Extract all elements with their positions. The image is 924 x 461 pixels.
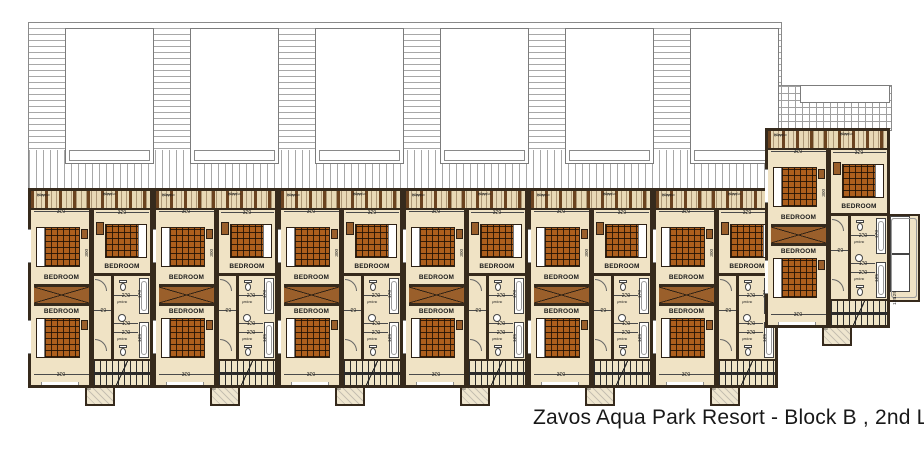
pergola-strip: ξύλινη πέργολα ξύλινη πέργολα <box>406 191 525 210</box>
bed <box>773 167 817 207</box>
bath-label: μπάνιο <box>367 301 377 304</box>
pillow-icon <box>162 228 170 266</box>
stair-bay: 90 <box>85 386 115 406</box>
roof-opening <box>65 28 154 164</box>
bedroom-label: BEDROOM <box>659 308 714 315</box>
dimension-label: 90 <box>831 250 849 251</box>
bedroom-label: BEDROOM <box>345 263 399 270</box>
dimension-label: 220 <box>114 295 138 296</box>
bench <box>346 222 354 235</box>
dimension-label: 220 <box>851 272 875 273</box>
dimension-label: 300 <box>534 211 589 212</box>
bathtub <box>890 254 910 292</box>
bath-label: μπάνιο <box>492 301 502 304</box>
interior-wall <box>344 273 400 276</box>
bath-label: μπάνιο <box>242 338 252 341</box>
toilet-bowl <box>245 283 251 291</box>
dimension-label: 220 <box>614 332 638 333</box>
stair-winder-line <box>219 361 275 385</box>
bed-blanket <box>45 319 79 357</box>
window <box>403 320 406 354</box>
pillow-icon <box>662 319 670 357</box>
dimension-label: 220 <box>489 332 513 333</box>
window <box>41 382 79 385</box>
stair-winder-line <box>594 361 650 385</box>
bath-label: μπάνιο <box>117 338 127 341</box>
dimension-label: 125 <box>893 297 898 305</box>
window <box>765 260 768 294</box>
dimension-label: 170 <box>638 290 643 298</box>
toilet-bowl <box>370 348 376 356</box>
end-unit-bath-strip: 125 125 <box>888 214 920 302</box>
dimension-label: 120 <box>364 323 388 324</box>
dimension-label: 90 <box>824 328 838 331</box>
stairs <box>831 299 887 325</box>
dimension-label: 220 <box>739 295 763 296</box>
nightstand <box>581 229 588 239</box>
window <box>765 169 768 203</box>
dimension-label: 90 <box>337 388 351 391</box>
interior-wall <box>831 213 887 216</box>
nightstand <box>206 320 213 330</box>
dimension-label: 300 <box>771 314 826 315</box>
bedroom-label: BEDROOM <box>771 248 826 255</box>
bed-blanket <box>170 228 204 266</box>
dimension-label: 90 <box>462 388 476 391</box>
bed <box>161 227 205 267</box>
bench <box>833 162 841 175</box>
unit: ξύλινη πέργολα ξύλινη πέργολα 300 300 BE… <box>765 128 890 328</box>
pergola-strip: ξύλινη πέργολα ξύλινη πέργολα <box>656 191 775 210</box>
dimension-label: 90 <box>594 310 612 311</box>
dimension-label: 220 <box>489 295 513 296</box>
unit: ξύλινη πέργολα ξύλινη πέργολα 300 300 BE… <box>653 188 778 388</box>
bench <box>596 222 604 235</box>
door-arc <box>595 339 607 351</box>
bed <box>105 224 147 258</box>
interior-wall <box>594 273 650 276</box>
dimension-label: 125 <box>138 334 143 342</box>
toilet-bowl <box>370 283 376 291</box>
stair-winder-line <box>94 361 150 385</box>
roof-opening-sill <box>569 150 650 161</box>
bedroom-label: BEDROOM <box>220 263 274 270</box>
window <box>291 382 329 385</box>
bedroom-label: BEDROOM <box>832 203 886 210</box>
roof-opening-sill <box>69 150 150 161</box>
stairs <box>469 359 525 385</box>
unit: ξύλινη πέργολα ξύλινη πέργολα 300 300 BE… <box>403 188 528 388</box>
interior-wall <box>611 276 614 359</box>
toilet-icon <box>244 280 252 291</box>
dimension-label: 220 <box>739 332 763 333</box>
pillow-icon <box>875 165 883 197</box>
bedroom-label: BEDROOM <box>470 263 524 270</box>
bedroom-label: BEDROOM <box>659 274 714 281</box>
bed-blanket <box>231 225 263 257</box>
window <box>666 382 704 385</box>
nightstand <box>818 169 825 179</box>
pergola-strip: ξύλινη πέργολα ξύλινη πέργολα <box>281 191 400 210</box>
stairs <box>219 359 275 385</box>
unit: ξύλινη πέργολα ξύλινη πέργολα 300 300 BE… <box>278 188 403 388</box>
window <box>653 229 656 263</box>
window <box>653 320 656 354</box>
dimension-label: 320 <box>471 212 524 213</box>
bed <box>355 224 397 258</box>
interior-wall <box>236 276 239 359</box>
pillow-icon <box>287 228 295 266</box>
dimension-label: 120 <box>614 323 638 324</box>
stair-bay: 90 <box>585 386 615 406</box>
dimension-label: 170 <box>388 290 393 298</box>
bed-blanket <box>843 165 875 197</box>
roof-opening <box>440 28 529 164</box>
toilet-bowl <box>620 348 626 356</box>
bed <box>411 227 455 267</box>
end-veranda-roof <box>800 85 890 103</box>
bath-label: μπάνιο <box>854 278 864 281</box>
door-arc <box>720 279 732 291</box>
dimension-label: 170 <box>138 290 143 298</box>
dimension-label: 120 <box>739 323 763 324</box>
bed <box>661 227 705 267</box>
bed-blanket <box>295 228 329 266</box>
pillow-icon <box>37 319 45 357</box>
dimension-label: 300 <box>159 374 214 375</box>
window <box>403 229 406 263</box>
bed-blanket <box>420 319 454 357</box>
window <box>528 320 531 354</box>
pergola-strip: ξύλινη πέργολα ξύλινη πέργολα <box>31 191 150 210</box>
stairs <box>94 359 150 385</box>
toilet-bowl <box>495 348 501 356</box>
wardrobe <box>534 284 589 306</box>
interior-wall <box>736 276 739 359</box>
interior-wall <box>848 216 851 299</box>
pergola-strip: ξύλινη πέργολα ξύλινη πέργολα <box>156 191 275 210</box>
toilet-bowl <box>620 283 626 291</box>
pillow-icon <box>537 319 545 357</box>
dimension-label: 120 <box>851 263 875 264</box>
stair-winder-line <box>469 361 525 385</box>
toilet-icon <box>744 345 752 356</box>
dimension-label: 300 <box>284 374 339 375</box>
toilet-icon <box>856 220 864 231</box>
toilet-icon <box>619 345 627 356</box>
dimension-label: 90 <box>219 310 237 311</box>
window <box>28 320 31 354</box>
toilet-icon <box>619 280 627 291</box>
pillow-icon <box>638 225 646 257</box>
toilet-icon <box>744 280 752 291</box>
door-arc <box>470 279 482 291</box>
dimension-label: 90 <box>719 310 737 311</box>
bath-label: μπάνιο <box>492 338 502 341</box>
toilet-bowl <box>120 283 126 291</box>
dimension-label: 320 <box>221 212 274 213</box>
dimension-label: 300 <box>284 211 339 212</box>
dimension-label: 300 <box>409 374 464 375</box>
roof-opening <box>565 28 654 164</box>
pergola-strip: ξύλινη πέργολα ξύλινη πέργολα <box>531 191 650 210</box>
bed-blanket <box>295 319 329 357</box>
toilet-bowl <box>495 283 501 291</box>
window <box>778 322 816 325</box>
roof-opening-sill <box>194 150 275 161</box>
pillow-icon <box>412 228 420 266</box>
window <box>166 382 204 385</box>
stairs <box>344 359 400 385</box>
roof-opening <box>315 28 404 164</box>
pillow-icon <box>662 228 670 266</box>
dimension-label: 220 <box>239 332 263 333</box>
window <box>278 229 281 263</box>
pillow-icon <box>412 319 420 357</box>
dimension-label: 170 <box>875 230 880 238</box>
dimension-label: 300 <box>534 374 589 375</box>
roof-opening-sill <box>694 150 775 161</box>
bedroom-label: BEDROOM <box>284 308 339 315</box>
dimension-label: 320 <box>833 152 886 153</box>
stair-bay: 90 <box>210 386 240 406</box>
bath-label: μπάνιο <box>742 338 752 341</box>
floor-plan: ξύλινη πέργολα ξύλινη πέργολα 300 300 BE… <box>0 0 924 461</box>
unit: ξύλινη πέργολα ξύλινη πέργολα 300 300 BE… <box>153 188 278 388</box>
dimension-label: 120 <box>239 323 263 324</box>
unit: ξύλινη πέργολα ξύλινη πέργολα 300 300 BE… <box>28 188 153 388</box>
window <box>278 320 281 354</box>
pillow-icon <box>774 168 782 206</box>
door-arc <box>345 339 357 351</box>
stair-winder-line <box>831 301 887 325</box>
dimension-label: 170 <box>263 290 268 298</box>
dimension-label: 90 <box>212 388 226 391</box>
dimension-label: 90 <box>469 310 487 311</box>
dimension-label: 170 <box>513 290 518 298</box>
bed <box>536 227 580 267</box>
pillow-icon <box>774 259 782 297</box>
dimension-label: 125 <box>263 334 268 342</box>
interior-wall <box>94 273 150 276</box>
stair-bay: 90 <box>335 386 365 406</box>
bedroom-label: BEDROOM <box>771 214 826 221</box>
bed-blanket <box>782 259 816 297</box>
window <box>153 229 156 263</box>
dimension-label: 220 <box>114 332 138 333</box>
dimension-label: 120 <box>489 323 513 324</box>
dimension-label: 300 <box>34 374 89 375</box>
pillow-icon <box>263 225 271 257</box>
roof-opening <box>190 28 279 164</box>
bed-blanket <box>545 319 579 357</box>
door-arc <box>95 339 107 351</box>
bench <box>721 222 729 235</box>
bench <box>96 222 104 235</box>
bath-label: μπάνιο <box>742 301 752 304</box>
interior-wall <box>219 273 275 276</box>
bed <box>286 318 330 358</box>
dimension-label: 90 <box>87 388 101 391</box>
toilet-bowl <box>857 223 863 231</box>
dimension-label: 320 <box>96 212 149 213</box>
stair-bay: 90 <box>460 386 490 406</box>
dimension-label: 90 <box>94 310 112 311</box>
pillow-icon <box>162 319 170 357</box>
bedroom-label: BEDROOM <box>34 308 89 315</box>
bed-blanket <box>420 228 454 266</box>
toilet-icon <box>369 280 377 291</box>
nightstand <box>206 229 213 239</box>
bed-blanket <box>670 319 704 357</box>
unit: ξύλινη πέργολα ξύλινη πέργολα 300 300 BE… <box>528 188 653 388</box>
toilet-bowl <box>120 348 126 356</box>
wardrobe <box>771 224 826 246</box>
toilet-icon <box>244 345 252 356</box>
bed <box>36 318 80 358</box>
wardrobe <box>34 284 89 306</box>
bed <box>286 227 330 267</box>
plan-title: Zavos Aqua Park Resort - Block B , 2nd L… <box>533 406 924 430</box>
wardrobe <box>159 284 214 306</box>
toilet-icon <box>494 280 502 291</box>
dimension-label: 120 <box>114 323 138 324</box>
nightstand <box>331 229 338 239</box>
nightstand <box>331 320 338 330</box>
bath-label: μπάνιο <box>617 338 627 341</box>
door-arc <box>220 279 232 291</box>
nightstand <box>456 229 463 239</box>
dimension-label: 300 <box>34 211 89 212</box>
dimension-label: 320 <box>346 212 399 213</box>
interior-wall <box>111 276 114 359</box>
pillow-icon <box>513 225 521 257</box>
bench <box>471 222 479 235</box>
door-arc <box>595 279 607 291</box>
bedroom-label: BEDROOM <box>534 308 589 315</box>
bed <box>411 318 455 358</box>
window <box>416 382 454 385</box>
door-arc <box>220 339 232 351</box>
door-arc <box>720 339 732 351</box>
bed-blanket <box>731 225 763 257</box>
bed-blanket <box>45 228 79 266</box>
dimension-label: 300 <box>159 211 214 212</box>
dimension-label: 300 <box>659 211 714 212</box>
nightstand <box>81 320 88 330</box>
stairs <box>594 359 650 385</box>
pillow-icon <box>537 228 545 266</box>
door-arc <box>832 219 844 231</box>
dimension-label: 220 <box>364 295 388 296</box>
stair-bay: 90 <box>822 326 852 346</box>
bed-blanket <box>481 225 513 257</box>
bench <box>221 222 229 235</box>
dimension-label: 125 <box>763 334 768 342</box>
toilet-icon <box>119 280 127 291</box>
bedroom-label: BEDROOM <box>159 308 214 315</box>
bedroom-label: BEDROOM <box>159 274 214 281</box>
dimension-label: 320 <box>596 212 649 213</box>
pergola-strip: ξύλινη πέργολα ξύλινη πέργολα <box>768 131 887 150</box>
stair-winder-line <box>344 361 400 385</box>
bed-blanket <box>356 225 388 257</box>
roof-opening-sill <box>444 150 525 161</box>
dimension-label: 125 <box>638 334 643 342</box>
bed-blanket <box>670 228 704 266</box>
toilet-bowl <box>745 283 751 291</box>
bed-blanket <box>782 168 816 206</box>
dimension-label: 220 <box>239 295 263 296</box>
pillow-icon <box>37 228 45 266</box>
nightstand <box>706 229 713 239</box>
door-arc <box>470 339 482 351</box>
dimension-label: 90 <box>344 310 362 311</box>
dimension-label: 90 <box>587 388 601 391</box>
bedroom-label: BEDROOM <box>34 274 89 281</box>
dimension-label: 220 <box>851 235 875 236</box>
window <box>28 229 31 263</box>
dimension-label: 300 <box>771 151 826 152</box>
toilet-bowl <box>245 348 251 356</box>
toilet-bowl <box>857 288 863 296</box>
wardrobe <box>284 284 339 306</box>
nightstand <box>81 229 88 239</box>
bath-label: μπάνιο <box>367 338 377 341</box>
dimension-label: 125 <box>875 274 880 282</box>
bed <box>161 318 205 358</box>
window <box>528 229 531 263</box>
bedroom-label: BEDROOM <box>595 263 649 270</box>
pillow-icon <box>138 225 146 257</box>
bed-blanket <box>545 228 579 266</box>
window <box>153 320 156 354</box>
interior-wall <box>486 276 489 359</box>
interior-wall <box>361 276 364 359</box>
door-arc <box>95 279 107 291</box>
nightstand <box>456 320 463 330</box>
bed-blanket <box>170 319 204 357</box>
bed-blanket <box>606 225 638 257</box>
dimension-label: 300 <box>659 374 714 375</box>
bath-label: μπάνιο <box>617 301 627 304</box>
bath-label: μπάνιο <box>854 241 864 244</box>
dimension-label: 300 <box>409 211 464 212</box>
bedroom-label: BEDROOM <box>284 274 339 281</box>
dimension-label: 220 <box>364 332 388 333</box>
bath-label: μπάνιο <box>117 301 127 304</box>
pillow-icon <box>388 225 396 257</box>
nightstand <box>581 320 588 330</box>
dimension-label: 220 <box>614 295 638 296</box>
dimension-label: 125 <box>388 334 393 342</box>
dimension-label: 90 <box>712 388 726 391</box>
interior-wall <box>469 273 525 276</box>
bedroom-label: BEDROOM <box>409 274 464 281</box>
bed <box>536 318 580 358</box>
toilet-icon <box>119 345 127 356</box>
wardrobe <box>409 284 464 306</box>
nightstand <box>818 260 825 270</box>
bedroom-label: BEDROOM <box>95 263 149 270</box>
bed <box>480 224 522 258</box>
bed <box>605 224 647 258</box>
door-arc <box>345 279 357 291</box>
bath-label: μπάνιο <box>242 301 252 304</box>
door-arc <box>832 279 844 291</box>
bedroom-label: BEDROOM <box>534 274 589 281</box>
nightstand <box>706 320 713 330</box>
